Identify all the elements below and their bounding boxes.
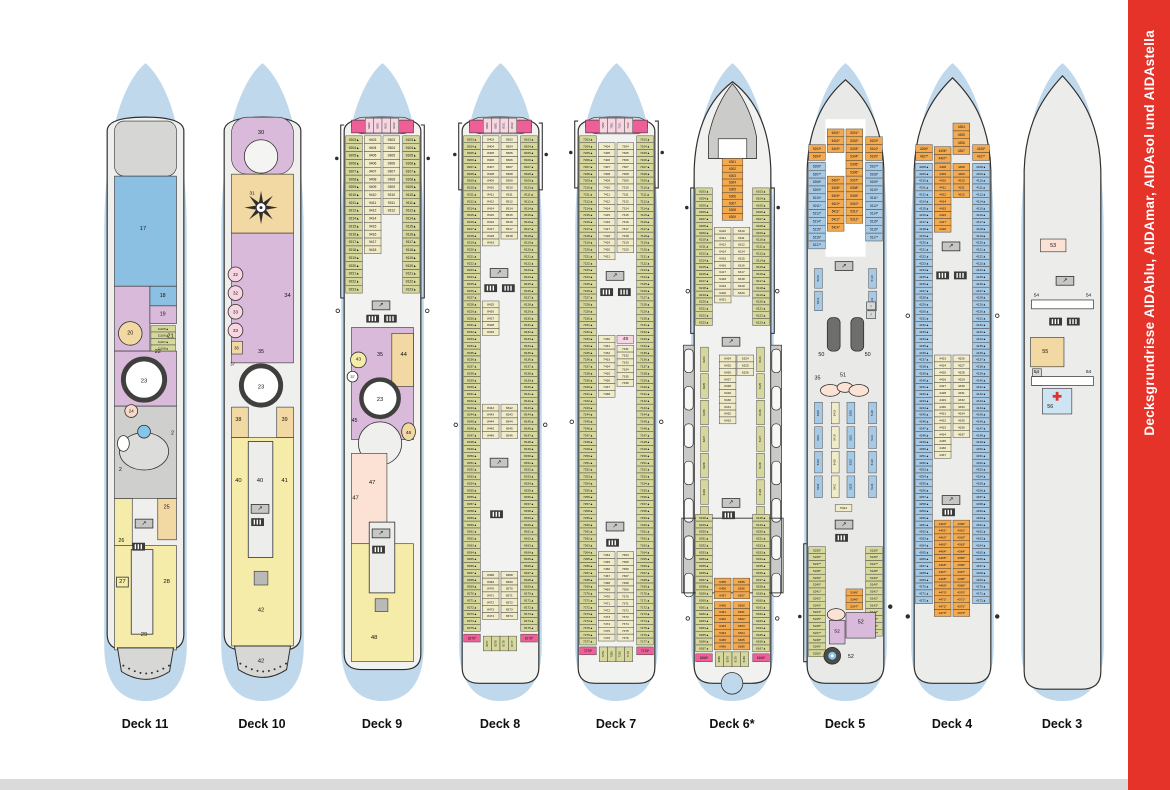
svg-text:4261▲: 4261▲ bbox=[919, 523, 929, 527]
side-banner: Decksgrundrisse AIDAblu, AIDAmar, AIDAso… bbox=[1128, 0, 1170, 790]
svg-text:4126▲: 4126▲ bbox=[976, 282, 986, 286]
svg-text:9122▲: 9122▲ bbox=[405, 279, 416, 283]
svg-text:6269: 6269 bbox=[716, 656, 720, 663]
svg-text:8222▲: 8222▲ bbox=[467, 261, 477, 265]
svg-text:5323: 5323 bbox=[848, 483, 852, 490]
svg-text:6364: 6364 bbox=[737, 631, 744, 635]
svg-text:6107▲: 6107▲ bbox=[756, 217, 766, 221]
svg-text:8110▲: 8110▲ bbox=[524, 186, 534, 190]
svg-text:9306: 9306 bbox=[387, 162, 395, 166]
svg-text:9406: 9406 bbox=[368, 162, 376, 166]
svg-text:7226▲: 7226▲ bbox=[583, 289, 593, 293]
svg-text:35: 35 bbox=[377, 352, 383, 358]
svg-text:8151▲: 8151▲ bbox=[524, 461, 534, 465]
svg-text:6268*: 6268* bbox=[699, 656, 708, 660]
svg-text:6363: 6363 bbox=[737, 624, 744, 628]
svg-text:11105▲: 11105▲ bbox=[157, 327, 168, 331]
svg-text:6150▲: 6150▲ bbox=[756, 530, 766, 534]
svg-text:8159▲: 8159▲ bbox=[524, 516, 534, 520]
svg-text:5211*: 5211* bbox=[813, 204, 822, 208]
svg-text:4115▲: 4115▲ bbox=[976, 206, 986, 210]
svg-text:8120▲: 8120▲ bbox=[524, 248, 534, 252]
svg-text:5237*: 5237* bbox=[813, 562, 822, 566]
svg-text:7121▲: 7121▲ bbox=[640, 254, 650, 258]
svg-text:9211▲: 9211▲ bbox=[348, 201, 358, 205]
svg-text:6261▲: 6261▲ bbox=[699, 605, 709, 609]
svg-text:4141▲: 4141▲ bbox=[976, 385, 986, 389]
svg-text:5112*: 5112* bbox=[870, 204, 879, 208]
svg-text:7261▲: 7261▲ bbox=[583, 530, 593, 534]
svg-text:6361: 6361 bbox=[737, 610, 744, 614]
svg-text:7434: 7434 bbox=[603, 365, 610, 369]
svg-text:8270▲: 8270▲ bbox=[467, 592, 477, 596]
svg-text:♀: ♀ bbox=[869, 303, 872, 308]
svg-text:8111▲: 8111▲ bbox=[524, 193, 533, 197]
svg-text:6115▲: 6115▲ bbox=[756, 265, 766, 269]
svg-text:4128▲: 4128▲ bbox=[976, 296, 986, 300]
svg-text:8126▲: 8126▲ bbox=[524, 289, 534, 293]
svg-text:5140*: 5140* bbox=[870, 583, 879, 587]
svg-text:4307: 4307 bbox=[957, 149, 964, 153]
deck-label: Deck 4 bbox=[895, 717, 1010, 731]
svg-text:5309*: 5309* bbox=[850, 194, 859, 198]
svg-text:5137*: 5137* bbox=[870, 562, 879, 566]
svg-text:6257▲: 6257▲ bbox=[699, 578, 709, 582]
svg-text:4333: 4333 bbox=[957, 405, 964, 409]
svg-text:4132▲: 4132▲ bbox=[976, 323, 986, 327]
svg-text:8165▲: 8165▲ bbox=[524, 557, 534, 561]
svg-text:7408: 7408 bbox=[603, 172, 610, 176]
svg-text:8274▲: 8274▲ bbox=[467, 619, 477, 623]
svg-text:7157▲: 7157▲ bbox=[640, 502, 650, 506]
svg-text:8405: 8405 bbox=[487, 151, 494, 155]
svg-text:7112▲: 7112▲ bbox=[640, 199, 650, 203]
svg-text:7168▲: 7168▲ bbox=[640, 578, 650, 582]
svg-text:6362: 6362 bbox=[737, 617, 744, 621]
svg-text:9203▲: 9203▲ bbox=[348, 138, 359, 142]
svg-text:5235*: 5235* bbox=[813, 548, 822, 552]
svg-text:5104*: 5104* bbox=[869, 147, 878, 151]
svg-text:6360: 6360 bbox=[737, 603, 744, 607]
svg-text:4210▲: 4210▲ bbox=[919, 179, 929, 183]
svg-text:8271▲: 8271▲ bbox=[467, 598, 477, 602]
svg-text:4242▲: 4242▲ bbox=[919, 392, 929, 396]
svg-text:8220▲: 8220▲ bbox=[467, 248, 477, 252]
svg-text:54: 54 bbox=[1033, 293, 1039, 299]
svg-text:27: 27 bbox=[119, 579, 126, 585]
svg-text:6414: 6414 bbox=[719, 250, 726, 254]
svg-text:32: 32 bbox=[233, 272, 238, 277]
svg-text:5138*: 5138* bbox=[870, 569, 879, 573]
svg-text:6301: 6301 bbox=[729, 160, 736, 164]
svg-text:6159▲: 6159▲ bbox=[756, 592, 766, 596]
svg-text:7247▲: 7247▲ bbox=[583, 433, 593, 437]
svg-text:23: 23 bbox=[376, 397, 383, 403]
svg-text:50: 50 bbox=[818, 352, 824, 358]
svg-text:6461: 6461 bbox=[719, 610, 726, 614]
svg-text:4429: 4429 bbox=[939, 398, 946, 402]
svg-text:♂: ♂ bbox=[869, 312, 872, 317]
svg-text:8370: 8370 bbox=[505, 587, 512, 591]
svg-text:4224▲: 4224▲ bbox=[919, 268, 929, 272]
svg-text:7466: 7466 bbox=[603, 567, 610, 571]
svg-text:7315: 7315 bbox=[621, 213, 628, 217]
svg-text:↗: ↗ bbox=[1062, 278, 1067, 284]
svg-text:8412: 8412 bbox=[487, 199, 494, 203]
svg-text:6167▲: 6167▲ bbox=[756, 647, 766, 651]
svg-text:6123▲: 6123▲ bbox=[756, 320, 766, 324]
deck-label: Deck 3 bbox=[1005, 717, 1120, 731]
svg-text:8308: 8308 bbox=[505, 172, 512, 176]
svg-text:8368: 8368 bbox=[505, 573, 512, 577]
svg-text:4127▲: 4127▲ bbox=[976, 289, 986, 293]
svg-text:8403: 8403 bbox=[487, 137, 494, 141]
svg-text:8249▲: 8249▲ bbox=[467, 447, 477, 451]
svg-text:7144▲: 7144▲ bbox=[640, 413, 650, 417]
svg-text:7166▲: 7166▲ bbox=[640, 564, 650, 568]
svg-text:5407*: 5407* bbox=[831, 178, 840, 182]
svg-text:4120▲: 4120▲ bbox=[976, 241, 986, 245]
svg-text:37: 37 bbox=[230, 361, 235, 366]
svg-text:7122▲: 7122▲ bbox=[640, 261, 650, 265]
svg-text:4372*: 4372* bbox=[957, 604, 966, 608]
svg-text:4250▲: 4250▲ bbox=[919, 447, 929, 451]
svg-text:4150▲: 4150▲ bbox=[976, 447, 986, 451]
deck-plan-deck-5: 5401*5402*5403*5407*5408*5409*5410*5411*… bbox=[788, 60, 903, 731]
deck-9-drawing: 92029201910191029203▲9204▲9205▲9206▲9207… bbox=[325, 60, 440, 709]
svg-text:5246*: 5246* bbox=[813, 624, 822, 628]
svg-text:4366*: 4366* bbox=[957, 563, 966, 567]
svg-text:7468: 7468 bbox=[603, 581, 610, 585]
svg-text:5141*: 5141* bbox=[870, 590, 879, 594]
svg-text:42: 42 bbox=[257, 608, 264, 614]
svg-text:8153▲: 8153▲ bbox=[524, 475, 534, 479]
svg-text:39: 39 bbox=[281, 417, 287, 423]
svg-text:6216▲: 6216▲ bbox=[699, 272, 709, 276]
svg-text:5142*: 5142* bbox=[870, 596, 879, 600]
svg-text:7149▲: 7149▲ bbox=[640, 447, 650, 451]
svg-text:8252▲: 8252▲ bbox=[467, 468, 477, 472]
svg-text:8469: 8469 bbox=[487, 580, 494, 584]
svg-text:4170▲: 4170▲ bbox=[976, 585, 986, 589]
svg-text:8161▲: 8161▲ bbox=[524, 530, 534, 534]
svg-text:8215▲: 8215▲ bbox=[467, 213, 477, 217]
svg-text:7415: 7415 bbox=[603, 213, 610, 217]
svg-text:7469: 7469 bbox=[603, 588, 610, 592]
svg-text:6318: 6318 bbox=[737, 277, 744, 281]
svg-text:4412: 4412 bbox=[939, 193, 946, 197]
svg-text:7335: 7335 bbox=[621, 374, 628, 378]
svg-text:9201: 9201 bbox=[375, 122, 379, 129]
svg-text:7262▲: 7262▲ bbox=[583, 537, 593, 541]
svg-text:7130▲: 7130▲ bbox=[640, 316, 650, 320]
svg-text:8172▲: 8172▲ bbox=[524, 605, 534, 609]
svg-text:7115▲: 7115▲ bbox=[640, 213, 650, 217]
svg-text:4219▲: 4219▲ bbox=[919, 234, 929, 238]
deck-4-drawing: 43044305430643074406*4407*4206*4207*4106… bbox=[895, 60, 1010, 709]
svg-text:5122: 5122 bbox=[870, 459, 874, 466]
svg-text:8202: 8202 bbox=[484, 122, 488, 129]
svg-text:7139▲: 7139▲ bbox=[640, 378, 650, 382]
svg-text:35: 35 bbox=[814, 376, 820, 382]
svg-text:7165▲: 7165▲ bbox=[640, 557, 650, 561]
svg-text:8112▲: 8112▲ bbox=[524, 199, 534, 203]
svg-text:4220▲: 4220▲ bbox=[919, 241, 929, 245]
svg-text:7142▲: 7142▲ bbox=[640, 399, 650, 403]
svg-text:8154▲: 8154▲ bbox=[524, 481, 534, 485]
svg-text:6121▲: 6121▲ bbox=[756, 307, 766, 311]
svg-text:8228▲: 8228▲ bbox=[467, 303, 477, 307]
svg-text:4257▲: 4257▲ bbox=[919, 495, 929, 499]
svg-text:9219▲: 9219▲ bbox=[348, 256, 359, 260]
svg-text:6164▲: 6164▲ bbox=[756, 626, 766, 630]
svg-text:6109▲: 6109▲ bbox=[756, 231, 766, 235]
deck-plan-deck-3: 53↗545455♀♂545456Deck 3 bbox=[1005, 60, 1120, 731]
svg-text:6160▲: 6160▲ bbox=[756, 598, 766, 602]
svg-text:4363*: 4363* bbox=[957, 542, 966, 546]
svg-text:8262▲: 8262▲ bbox=[467, 537, 477, 541]
svg-text:7364: 7364 bbox=[621, 553, 628, 557]
svg-text:6116▲: 6116▲ bbox=[756, 272, 766, 276]
svg-text:6260▲: 6260▲ bbox=[699, 598, 709, 602]
svg-text:5114*: 5114* bbox=[870, 212, 879, 216]
svg-text:54: 54 bbox=[1085, 293, 1091, 299]
svg-text:8156▲: 8156▲ bbox=[524, 495, 534, 499]
svg-text:7271▲: 7271▲ bbox=[583, 598, 593, 602]
svg-text:9418: 9418 bbox=[368, 248, 376, 252]
svg-text:4465*: 4465* bbox=[938, 556, 947, 560]
svg-text:4114▲: 4114▲ bbox=[976, 199, 986, 203]
svg-text:8203▲: 8203▲ bbox=[467, 137, 477, 141]
svg-text:7147▲: 7147▲ bbox=[640, 433, 650, 437]
svg-text:8446: 8446 bbox=[487, 433, 494, 437]
svg-text:4212▲: 4212▲ bbox=[919, 193, 929, 197]
svg-text:7264▲: 7264▲ bbox=[583, 550, 593, 554]
svg-text:7365: 7365 bbox=[621, 560, 628, 564]
svg-text:6151▲: 6151▲ bbox=[756, 537, 766, 541]
svg-text:8139▲: 8139▲ bbox=[524, 378, 534, 382]
svg-text:4309: 4309 bbox=[957, 172, 964, 176]
svg-text:8273▲: 8273▲ bbox=[467, 612, 477, 616]
svg-text:8219▲: 8219▲ bbox=[467, 241, 477, 245]
svg-text:4260▲: 4260▲ bbox=[919, 516, 929, 520]
svg-text:4240▲: 4240▲ bbox=[919, 378, 929, 382]
svg-text:5311*: 5311* bbox=[850, 210, 859, 214]
svg-text:9310: 9310 bbox=[387, 193, 395, 197]
svg-text:8275▲: 8275▲ bbox=[467, 626, 477, 630]
svg-text:4121▲: 4121▲ bbox=[976, 248, 986, 252]
svg-text:4427: 4427 bbox=[939, 384, 946, 388]
svg-text:5220: 5220 bbox=[815, 409, 819, 416]
svg-text:9405: 9405 bbox=[368, 154, 376, 158]
svg-text:23: 23 bbox=[140, 379, 147, 385]
svg-text:8314: 8314 bbox=[505, 206, 512, 210]
deck-label: Deck 8 bbox=[443, 717, 558, 731]
svg-text:8212▲: 8212▲ bbox=[467, 199, 477, 203]
svg-text:9404: 9404 bbox=[368, 146, 376, 150]
svg-text:4217▲: 4217▲ bbox=[919, 220, 929, 224]
svg-text:4326: 4326 bbox=[957, 357, 964, 361]
svg-text:9121▲: 9121▲ bbox=[405, 272, 416, 276]
svg-text:7435: 7435 bbox=[603, 371, 610, 375]
deck-plan-page: 17181911105▲11106▲11107▲11108▲2021222324… bbox=[0, 0, 1170, 790]
svg-text:7374: 7374 bbox=[621, 622, 628, 626]
svg-text:4367*: 4367* bbox=[957, 570, 966, 574]
svg-text:6317: 6317 bbox=[737, 270, 744, 274]
svg-text:8343: 8343 bbox=[505, 413, 512, 417]
svg-text:5241*: 5241* bbox=[813, 590, 822, 594]
svg-text:8115▲: 8115▲ bbox=[524, 213, 534, 217]
deck-11-drawing: 17181911105▲11106▲11107▲11108▲2021222324… bbox=[88, 60, 203, 709]
svg-text:4468*: 4468* bbox=[938, 577, 947, 581]
svg-text:8231▲: 8231▲ bbox=[467, 323, 477, 327]
svg-text:33: 33 bbox=[233, 328, 238, 333]
svg-text:7336: 7336 bbox=[621, 381, 628, 385]
svg-text:4225▲: 4225▲ bbox=[919, 275, 929, 279]
svg-text:5403*: 5403* bbox=[831, 147, 840, 151]
svg-text:9208▲: 9208▲ bbox=[348, 177, 359, 181]
svg-text:7218▲: 7218▲ bbox=[583, 234, 593, 238]
svg-text:4425: 4425 bbox=[939, 370, 946, 374]
svg-text:6464: 6464 bbox=[719, 631, 726, 635]
svg-text:4236▲: 4236▲ bbox=[919, 351, 929, 355]
svg-text:5306*: 5306* bbox=[850, 170, 859, 174]
svg-text:7212▲: 7212▲ bbox=[583, 199, 593, 203]
svg-text:4267▲: 4267▲ bbox=[919, 564, 929, 568]
svg-text:4369*: 4369* bbox=[957, 584, 966, 588]
deck-plan-deck-11: 17181911105▲11106▲11107▲11108▲2021222324… bbox=[88, 60, 203, 731]
svg-text:7254▲: 7254▲ bbox=[583, 481, 593, 485]
svg-text:8162▲: 8162▲ bbox=[524, 537, 534, 541]
svg-text:6256▲: 6256▲ bbox=[699, 571, 709, 575]
svg-text:9106▲: 9106▲ bbox=[405, 162, 416, 166]
svg-text:↗: ↗ bbox=[378, 531, 383, 537]
svg-text:4135▲: 4135▲ bbox=[976, 344, 986, 348]
svg-text:4167▲: 4167▲ bbox=[976, 564, 986, 568]
svg-text:4361*: 4361* bbox=[957, 529, 966, 533]
svg-text:4336: 4336 bbox=[957, 425, 964, 429]
svg-text:9120▲: 9120▲ bbox=[405, 264, 416, 268]
svg-text:7124▲: 7124▲ bbox=[640, 275, 650, 279]
svg-text:8206▲: 8206▲ bbox=[467, 158, 477, 162]
svg-text:19: 19 bbox=[159, 312, 165, 318]
svg-text:21: 21 bbox=[167, 333, 174, 339]
svg-text:6127: 6127 bbox=[758, 436, 762, 443]
svg-text:8264▲: 8264▲ bbox=[467, 550, 477, 554]
svg-text:8310: 8310 bbox=[505, 186, 512, 190]
svg-text:6411: 6411 bbox=[719, 236, 726, 240]
svg-text:5221: 5221 bbox=[815, 434, 819, 441]
svg-text:4271▲: 4271▲ bbox=[919, 592, 929, 596]
svg-text:8133▲: 8133▲ bbox=[524, 337, 534, 341]
svg-text:42: 42 bbox=[257, 659, 264, 665]
svg-text:6307: 6307 bbox=[729, 201, 736, 205]
svg-text:8411: 8411 bbox=[487, 193, 494, 197]
svg-text:5411*: 5411* bbox=[831, 210, 840, 214]
svg-text:7153▲: 7153▲ bbox=[640, 475, 650, 479]
svg-text:5110*: 5110* bbox=[870, 188, 879, 192]
svg-text:8123▲: 8123▲ bbox=[524, 268, 534, 272]
svg-text:7432: 7432 bbox=[603, 351, 610, 355]
svg-text:7368: 7368 bbox=[621, 581, 628, 585]
svg-text:8171▲: 8171▲ bbox=[524, 598, 534, 602]
svg-text:8342: 8342 bbox=[505, 406, 512, 410]
svg-text:4334: 4334 bbox=[957, 412, 964, 416]
svg-text:4417: 4417 bbox=[939, 220, 946, 224]
svg-text:7221▲: 7221▲ bbox=[583, 254, 593, 258]
svg-text:4310: 4310 bbox=[957, 179, 964, 183]
svg-text:5203*: 5203* bbox=[812, 147, 821, 151]
svg-text:4153▲: 4153▲ bbox=[976, 468, 986, 472]
svg-text:8238▲: 8238▲ bbox=[467, 371, 477, 375]
svg-text:7306: 7306 bbox=[621, 158, 628, 162]
svg-text:7220▲: 7220▲ bbox=[583, 248, 593, 252]
svg-text:8169▲: 8169▲ bbox=[524, 585, 534, 589]
svg-text:4117▲: 4117▲ bbox=[976, 220, 986, 224]
svg-text:7471: 7471 bbox=[603, 601, 610, 605]
svg-text:8261▲: 8261▲ bbox=[467, 530, 477, 534]
svg-text:7250▲: 7250▲ bbox=[583, 454, 593, 458]
svg-text:4133▲: 4133▲ bbox=[976, 330, 986, 334]
svg-text:6421: 6421 bbox=[719, 298, 726, 302]
svg-text:9111▲: 9111▲ bbox=[405, 201, 415, 205]
svg-text:7253▲: 7253▲ bbox=[583, 475, 593, 479]
svg-text:7150▲: 7150▲ bbox=[640, 454, 650, 458]
svg-text:5135*: 5135* bbox=[870, 548, 879, 552]
svg-text:7373: 7373 bbox=[621, 615, 628, 619]
svg-text:8239▲: 8239▲ bbox=[467, 378, 477, 382]
svg-text:5107*: 5107* bbox=[869, 164, 878, 168]
svg-text:6220▲: 6220▲ bbox=[699, 300, 709, 304]
svg-text:7372: 7372 bbox=[621, 608, 628, 612]
svg-text:9119▲: 9119▲ bbox=[405, 256, 415, 260]
svg-text:5409*: 5409* bbox=[831, 194, 840, 198]
svg-text:7405: 7405 bbox=[603, 151, 610, 155]
svg-text:5117*: 5117* bbox=[870, 235, 879, 239]
svg-text:8267▲: 8267▲ bbox=[467, 571, 477, 575]
svg-text:6265▲: 6265▲ bbox=[699, 633, 709, 637]
svg-text:9204▲: 9204▲ bbox=[348, 146, 359, 150]
svg-text:↗: ↗ bbox=[728, 500, 733, 506]
deck-5-drawing: 5401*5402*5403*5407*5408*5409*5410*5411*… bbox=[788, 60, 903, 709]
svg-text:7178*: 7178* bbox=[640, 649, 649, 653]
svg-text:44: 44 bbox=[400, 352, 407, 358]
svg-text:8204▲: 8204▲ bbox=[467, 144, 477, 148]
svg-text:8254▲: 8254▲ bbox=[467, 481, 477, 485]
svg-text:4222▲: 4222▲ bbox=[919, 254, 929, 258]
svg-text:4251▲: 4251▲ bbox=[919, 454, 929, 458]
svg-text:6366: 6366 bbox=[737, 645, 744, 649]
svg-text:7207▲: 7207▲ bbox=[583, 165, 593, 169]
svg-text:8278: 8278 bbox=[493, 640, 497, 647]
svg-text:8474: 8474 bbox=[487, 614, 494, 618]
svg-text:9417: 9417 bbox=[368, 240, 376, 244]
svg-text:8265▲: 8265▲ bbox=[467, 557, 477, 561]
svg-text:9109▲: 9109▲ bbox=[405, 185, 416, 189]
svg-text:4239▲: 4239▲ bbox=[919, 371, 929, 375]
svg-text:7114▲: 7114▲ bbox=[640, 206, 650, 210]
svg-text:7158▲: 7158▲ bbox=[640, 509, 650, 513]
svg-text:7105▲: 7105▲ bbox=[640, 151, 650, 155]
svg-text:5401*: 5401* bbox=[831, 131, 840, 135]
svg-text:5219: 5219 bbox=[815, 297, 819, 304]
svg-text:4149▲: 4149▲ bbox=[976, 440, 986, 444]
svg-text:7433: 7433 bbox=[603, 358, 610, 362]
svg-text:4268▲: 4268▲ bbox=[919, 571, 929, 575]
svg-text:4249▲: 4249▲ bbox=[919, 440, 929, 444]
svg-text:4410: 4410 bbox=[939, 179, 946, 183]
svg-text:5212*: 5212* bbox=[812, 212, 821, 216]
